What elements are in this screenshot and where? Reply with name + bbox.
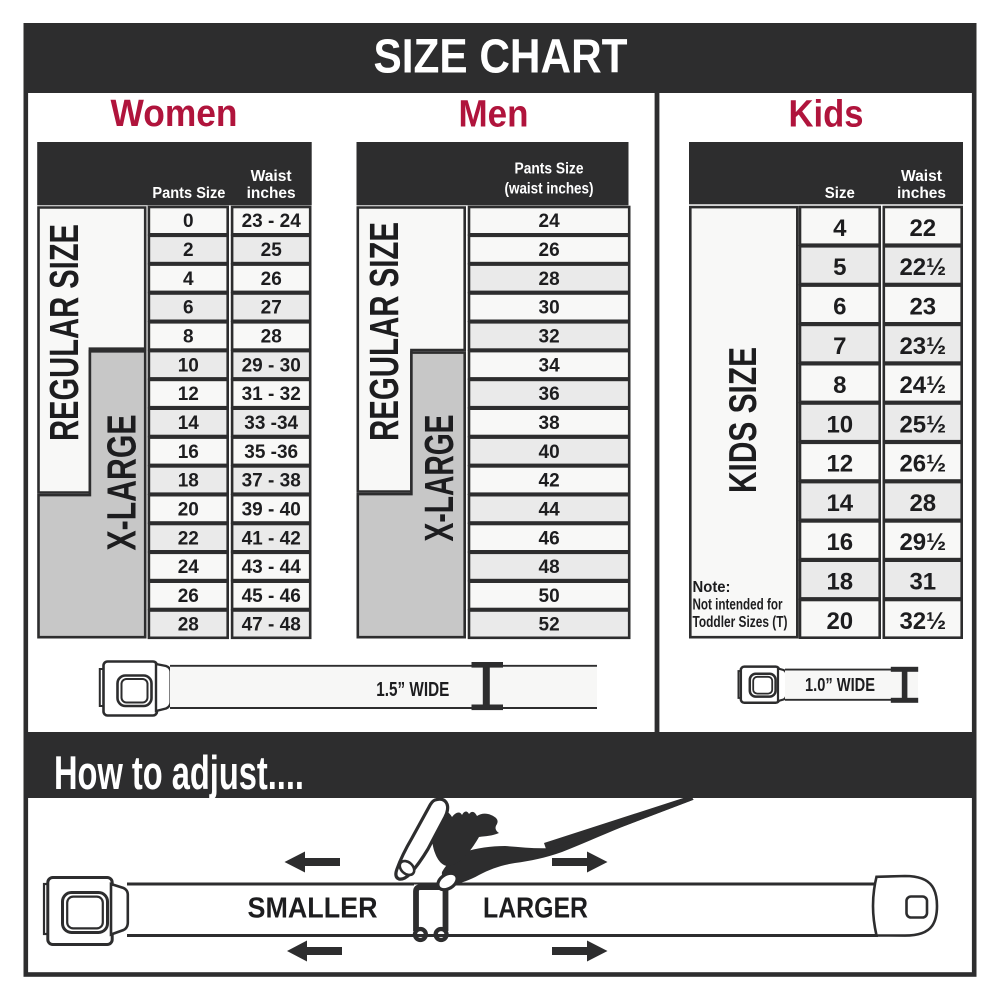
svg-text:28: 28 bbox=[539, 269, 560, 290]
svg-text:6: 6 bbox=[833, 293, 846, 320]
svg-text:Size: Size bbox=[825, 185, 855, 202]
svg-text:Pants Size: Pants Size bbox=[152, 185, 225, 202]
svg-text:1.5” WIDE: 1.5” WIDE bbox=[376, 679, 449, 701]
svg-text:48: 48 bbox=[539, 557, 560, 578]
svg-text:LARGER: LARGER bbox=[483, 893, 588, 925]
svg-text:(waist inches): (waist inches) bbox=[505, 181, 594, 198]
svg-text:12: 12 bbox=[826, 451, 853, 478]
svg-text:35 -36: 35 -36 bbox=[244, 442, 298, 463]
svg-text:20: 20 bbox=[826, 608, 853, 635]
svg-text:SMALLER: SMALLER bbox=[248, 893, 378, 925]
svg-text:52: 52 bbox=[539, 615, 560, 636]
svg-text:18: 18 bbox=[178, 471, 199, 492]
svg-text:29½: 29½ bbox=[899, 529, 946, 556]
svg-text:6: 6 bbox=[183, 298, 194, 319]
svg-text:34: 34 bbox=[539, 355, 561, 376]
svg-text:Toddler Sizes (T): Toddler Sizes (T) bbox=[693, 614, 788, 631]
svg-text:26: 26 bbox=[178, 586, 199, 607]
svg-text:25: 25 bbox=[261, 240, 283, 261]
svg-text:Waist: Waist bbox=[901, 168, 943, 185]
svg-text:8: 8 bbox=[183, 327, 194, 348]
svg-text:REGULAR SIZE: REGULAR SIZE bbox=[41, 224, 87, 441]
svg-text:43 - 44: 43 - 44 bbox=[242, 557, 302, 578]
svg-text:26: 26 bbox=[539, 240, 560, 261]
svg-text:33 -34: 33 -34 bbox=[244, 413, 298, 434]
svg-text:1.0” WIDE: 1.0” WIDE bbox=[805, 674, 875, 695]
svg-text:24: 24 bbox=[178, 557, 200, 578]
svg-text:32: 32 bbox=[539, 327, 560, 348]
svg-text:27: 27 bbox=[261, 298, 282, 319]
svg-text:40: 40 bbox=[539, 442, 560, 463]
svg-text:Kids: Kids bbox=[789, 94, 864, 136]
svg-text:5: 5 bbox=[833, 254, 846, 281]
svg-text:42: 42 bbox=[539, 471, 560, 492]
svg-text:28: 28 bbox=[909, 490, 936, 517]
svg-text:8: 8 bbox=[833, 372, 846, 399]
svg-text:inches: inches bbox=[247, 185, 296, 202]
svg-text:29 - 30: 29 - 30 bbox=[242, 355, 301, 376]
svg-text:14: 14 bbox=[826, 490, 853, 517]
svg-text:26½: 26½ bbox=[899, 451, 946, 478]
svg-text:2: 2 bbox=[183, 240, 194, 261]
svg-text:Not intended for: Not intended for bbox=[693, 597, 783, 614]
svg-text:22: 22 bbox=[909, 215, 936, 242]
svg-text:14: 14 bbox=[178, 413, 200, 434]
svg-text:4: 4 bbox=[833, 215, 847, 242]
svg-text:X-LARGE: X-LARGE bbox=[416, 415, 462, 542]
svg-text:39 - 40: 39 - 40 bbox=[242, 499, 301, 520]
svg-text:37 - 38: 37 - 38 bbox=[242, 471, 301, 492]
svg-text:31: 31 bbox=[909, 569, 936, 596]
svg-text:23½: 23½ bbox=[899, 333, 946, 360]
svg-text:22½: 22½ bbox=[899, 254, 946, 281]
svg-text:18: 18 bbox=[826, 569, 853, 596]
svg-text:26: 26 bbox=[261, 269, 282, 290]
svg-text:22: 22 bbox=[178, 528, 199, 549]
svg-text:How to adjust....: How to adjust.... bbox=[54, 747, 304, 800]
svg-text:Waist: Waist bbox=[251, 168, 293, 185]
svg-text:25½: 25½ bbox=[899, 411, 946, 438]
svg-text:0: 0 bbox=[183, 211, 194, 232]
svg-text:23 - 24: 23 - 24 bbox=[242, 211, 302, 232]
svg-text:41 - 42: 41 - 42 bbox=[242, 528, 301, 549]
svg-text:10: 10 bbox=[826, 411, 853, 438]
svg-text:23: 23 bbox=[909, 293, 936, 320]
svg-text:4: 4 bbox=[183, 269, 194, 290]
svg-text:44: 44 bbox=[539, 499, 561, 520]
svg-text:7: 7 bbox=[833, 333, 846, 360]
svg-text:Women: Women bbox=[111, 93, 238, 135]
svg-text:47 - 48: 47 - 48 bbox=[242, 615, 301, 636]
svg-text:Note:: Note: bbox=[693, 579, 731, 596]
svg-text:50: 50 bbox=[539, 586, 560, 607]
svg-text:46: 46 bbox=[539, 528, 560, 549]
svg-text:24: 24 bbox=[539, 211, 561, 232]
svg-text:Pants Size: Pants Size bbox=[515, 161, 584, 178]
svg-text:28: 28 bbox=[261, 327, 282, 348]
svg-text:28: 28 bbox=[178, 615, 199, 636]
svg-text:16: 16 bbox=[178, 442, 199, 463]
svg-text:10: 10 bbox=[178, 355, 199, 376]
svg-text:SIZE CHART: SIZE CHART bbox=[374, 31, 628, 84]
svg-text:45 - 46: 45 - 46 bbox=[242, 586, 301, 607]
svg-text:KIDS SIZE: KIDS SIZE bbox=[722, 347, 765, 493]
svg-text:36: 36 bbox=[539, 384, 560, 405]
svg-text:24½: 24½ bbox=[899, 372, 946, 399]
svg-text:12: 12 bbox=[178, 384, 199, 405]
svg-text:inches: inches bbox=[897, 185, 946, 202]
svg-text:16: 16 bbox=[826, 529, 853, 556]
svg-text:X-LARGE: X-LARGE bbox=[99, 415, 145, 551]
svg-text:Men: Men bbox=[459, 94, 529, 136]
svg-text:38: 38 bbox=[539, 413, 560, 434]
svg-text:30: 30 bbox=[539, 298, 560, 319]
svg-text:20: 20 bbox=[178, 499, 199, 520]
svg-text:REGULAR SIZE: REGULAR SIZE bbox=[361, 222, 407, 441]
svg-text:32½: 32½ bbox=[899, 608, 946, 635]
svg-text:31 - 32: 31 - 32 bbox=[242, 384, 301, 405]
